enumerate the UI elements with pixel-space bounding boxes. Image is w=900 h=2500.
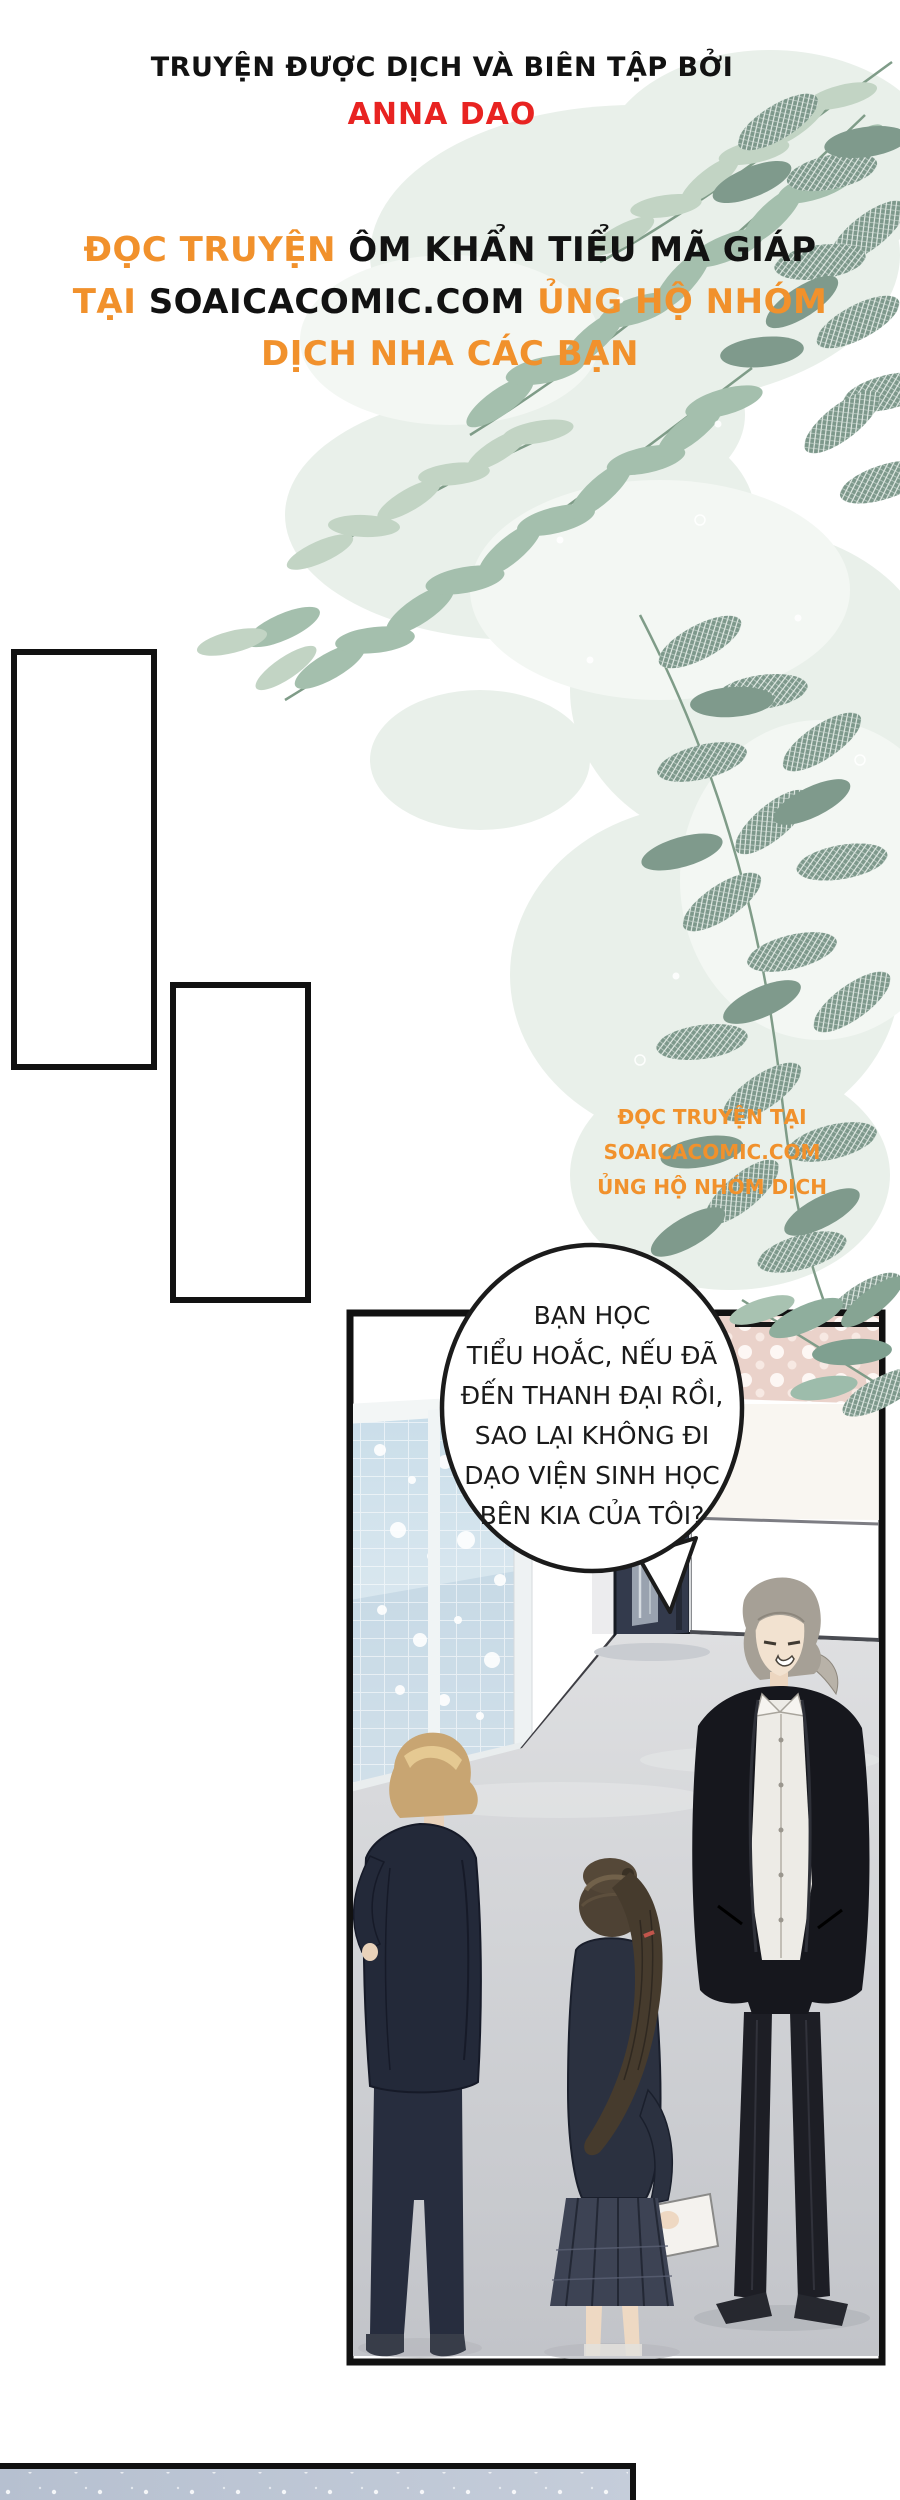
bottom-panel [0,2466,633,2500]
bubble-line: TIỂU HOẮC, NẾU ĐÃ [448,1336,736,1376]
promo-text: ĐỌC TRUYỆN ÔM KHẨN TIỂU MÃ GIÁP TẠI SOAI… [70,224,830,380]
bubble-line: DẠO VIỆN SINH HỌC [448,1456,736,1496]
bubble-line: SAO LẠI KHÔNG ĐI [448,1416,736,1456]
promo-line2-black: SOAICACOMIC.COM [149,282,525,322]
promo-line1-black: ÔM KHẨN TIỂU MÃ GIÁP [348,230,816,270]
watermark-line1: ĐỌC TRUYỆN TẠI [592,1100,832,1135]
bubble-line: BÊN KIA CỦA TÔI? [448,1496,736,1536]
watermark-line2: SOAICACOMIC.COM [592,1135,832,1170]
credit-author: ANNA DAO [142,97,742,132]
credit-line: TRUYỆN ĐƯỢC DỊCH VÀ BIÊN TẬP BỞI [142,52,742,83]
watermark-text: ĐỌC TRUYỆN TẠI SOAICACOMIC.COM ỦNG HỘ NH… [592,1100,832,1205]
empty-panel-2 [173,985,308,1300]
promo-line1-orange: ĐỌC TRUYỆN [83,230,335,270]
promo-line2-orange-a: TẠI [73,282,137,322]
promo-line2-orange-b: ỦNG HỘ [537,282,693,322]
speech-bubble-text: BẠN HỌC TIỂU HOẮC, NẾU ĐÃ ĐẾN THANH ĐẠI … [448,1296,736,1536]
empty-panel-1 [14,652,154,1067]
bubble-line: ĐẾN THANH ĐẠI RỒI, [448,1376,736,1416]
comic-page: TRUYỆN ĐƯỢC DỊCH VÀ BIÊN TẬP BỞI ANNA DA… [0,0,900,2500]
bubble-line: BẠN HỌC [448,1296,736,1336]
watermark-line3: ỦNG HỘ NHÓM DỊCH [592,1170,832,1205]
